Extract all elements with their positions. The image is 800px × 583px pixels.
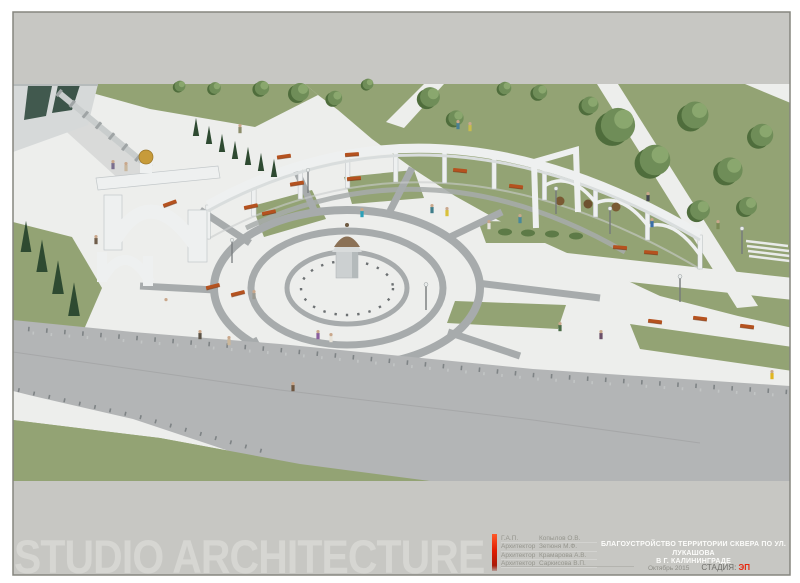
- gold-sphere: [139, 150, 153, 164]
- credit-name: Копылов О.В.: [539, 535, 597, 542]
- credit-role: Архитектор: [501, 543, 539, 550]
- credit-name: Зетюня М.Ф.: [539, 543, 597, 550]
- credit-role: Г.А.П.: [501, 535, 539, 542]
- credit-row: Архитектор Крамарова А.В.: [501, 552, 597, 560]
- titleblock-meta: Октябрь 2015 СТАДИЯ: ЭП: [598, 563, 750, 572]
- studio-watermark: STUDIO ARCHITECTURE: [14, 535, 484, 579]
- drawing-sheet: STUDIO ARCHITECTURE Г.А.П. Копылов О.В. …: [0, 0, 800, 583]
- render-viewport: [0, 0, 800, 583]
- credit-role: Архитектор: [501, 552, 539, 559]
- red-accent-bar: [492, 534, 497, 571]
- stage-label: СТАДИЯ:: [701, 563, 736, 572]
- sheet-date: Октябрь 2015: [648, 565, 689, 572]
- project-title-line1: БЛАГОУСТРОЙСТВО ТЕРРИТОРИИ СКВЕРА ПО УЛ.…: [597, 541, 790, 558]
- credit-row: Архитектор Зетюня М.Ф.: [501, 543, 597, 551]
- stage-value: ЭП: [739, 563, 750, 572]
- stage-field: СТАДИЯ: ЭП: [701, 563, 750, 572]
- credits-table: Г.А.П. Копылов О.В. Архитектор Зетюня М.…: [501, 535, 597, 568]
- credit-name: Крамарова А.В.: [539, 552, 597, 559]
- credit-row: Г.А.П. Копылов О.В.: [501, 535, 597, 543]
